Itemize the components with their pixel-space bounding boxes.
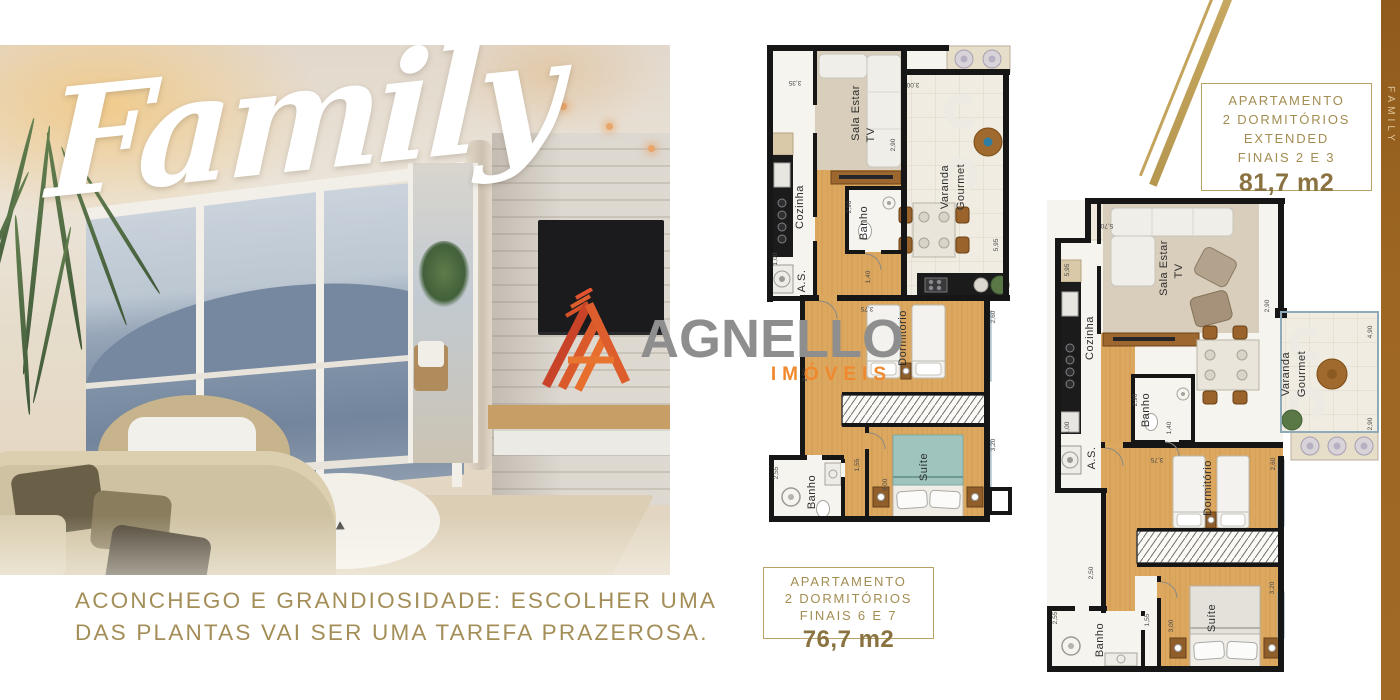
double-bed-icon (1190, 586, 1260, 668)
label-line: EXTENDED (1202, 129, 1371, 148)
dim-label: 1,55 (854, 458, 861, 471)
room-label-tv: TV (1173, 263, 1185, 278)
planter-flower-icon (1301, 437, 1373, 455)
area-value: 76,7 m2 (764, 626, 933, 654)
room-label-gourmet: Gourmet (1296, 351, 1308, 397)
room-label-banho: Banho (1140, 393, 1152, 427)
dim-label: 3,00 (882, 478, 889, 491)
label-line: APARTAMENTO (1202, 91, 1371, 110)
room-label-tv: TV (865, 127, 877, 142)
label-line: FINAIS 2 E 3 (1202, 148, 1371, 167)
room-label-sala: Sala Estar (1158, 240, 1170, 296)
room-label-banho-suite: Banho (806, 475, 818, 509)
room-label-banho-suite: Banho (1094, 623, 1106, 657)
plan-extended-label-box: APARTAMENTO 2 DORMITÓRIOS EXTENDED FINAI… (1201, 83, 1372, 191)
dim-label: 1,40 (1166, 421, 1173, 434)
room-label-gourmet: Gourmet (955, 164, 967, 210)
caption: ACONCHEGO E GRANDIOSIDADE: ESCOLHER UMA … (75, 585, 717, 649)
caption-line-1: ACONCHEGO E GRANDIOSIDADE: ESCOLHER UMA (75, 585, 717, 617)
tv-console-drawers (494, 429, 670, 455)
label-line: 2 DORMITÓRIOS (764, 590, 933, 607)
tv-console (488, 405, 670, 429)
agnello-logo-subtitle: IMÓVEIS (640, 364, 892, 386)
floor-highlight (0, 515, 670, 575)
plan-standard-label-box: APARTAMENTO 2 DORMITÓRIOS FINAIS 6 E 7 7… (763, 567, 934, 639)
room-label-dormitorio: Dormitório (1202, 460, 1214, 516)
dim-label: 5,70 (1100, 222, 1113, 229)
dim-label: 3,35 (788, 79, 801, 86)
ceiling-spotlight (560, 103, 567, 110)
balcony-plant (418, 241, 470, 311)
dim-label: 2,60 (1270, 457, 1277, 470)
room-label-varanda: Varanda (1280, 351, 1292, 396)
dim-label: 1,55 (1144, 613, 1151, 626)
dim-label: 2,90 (846, 200, 853, 213)
plant-icon (1282, 410, 1302, 430)
ceiling-spotlight (648, 145, 655, 152)
room-label-varanda: Varanda (939, 164, 951, 209)
area-value: 81,7 m2 (1202, 169, 1371, 198)
room-label-as: A.S. (1086, 447, 1098, 470)
dim-label: 2,55 (773, 466, 780, 479)
dim-label: 2,90 (1264, 299, 1271, 312)
label-line: FINAIS 6 E 7 (764, 607, 933, 624)
label-line: APARTAMENTO (764, 573, 933, 590)
dim-label: 1,00 (772, 252, 779, 265)
family-side-tab: FAMILY (1381, 0, 1400, 700)
dim-label: 3,00 (1168, 619, 1175, 632)
window-mullion (316, 187, 324, 484)
family-side-tab-label: FAMILY (1381, 0, 1400, 230)
brochure-page: Family ACONCHEGO E GRANDIOSIDADE: ESCOLH… (0, 0, 1400, 700)
room-label-sala: Sala Estar (850, 85, 862, 141)
ceiling-spotlight (606, 123, 613, 130)
dim-label: 3,20 (1269, 581, 1276, 594)
room-label-cozinha: Cozinha (794, 185, 806, 229)
balcony-doorway (408, 163, 478, 463)
dim-label: 1,00 (1064, 421, 1071, 434)
dim-label: 2,90 (1132, 393, 1139, 406)
dim-label: 3,20 (990, 438, 997, 451)
room-label-cozinha: Cozinha (1084, 316, 1096, 360)
room-label-suite: Suíte (1206, 604, 1218, 632)
label-line: 2 DORMITÓRIOS (1202, 110, 1371, 129)
agnello-logo: AGNELLO IMÓVEIS (536, 288, 896, 398)
agnello-logo-icon (536, 288, 632, 392)
dim-label: 1,40 (865, 270, 872, 283)
dim-label: 2,90 (890, 138, 897, 151)
room-label-banho: Banho (858, 206, 870, 240)
balcony-chair-cushion (418, 341, 444, 367)
dim-label: 4,90 (1367, 325, 1374, 338)
dim-label: 2,90 (1367, 417, 1374, 430)
dim-label: 5,95 (993, 238, 1000, 251)
dim-label: 3,00 (906, 81, 919, 88)
agnello-logo-name: AGNELLO (640, 308, 904, 370)
dim-label: 2,55 (1052, 611, 1059, 624)
floor-plan-standard: Sala Estar TV Cozinha A.S. Banho Varanda… (1045, 198, 1380, 673)
dim-label: 5,95 (1064, 263, 1071, 276)
dim-label: 2,50 (1088, 566, 1095, 579)
floor-plan-extended: Sala Estar TV Varanda Gourmet Cozinha A.… (767, 45, 1012, 527)
caption-line-2: DAS PLANTAS VAI SER UMA TAREFA PRAZEROSA… (75, 617, 717, 649)
room-label-suite: Suíte (918, 453, 930, 481)
dim-label: 2,60 (990, 310, 997, 323)
dim-label: 3,75 (1150, 456, 1163, 463)
